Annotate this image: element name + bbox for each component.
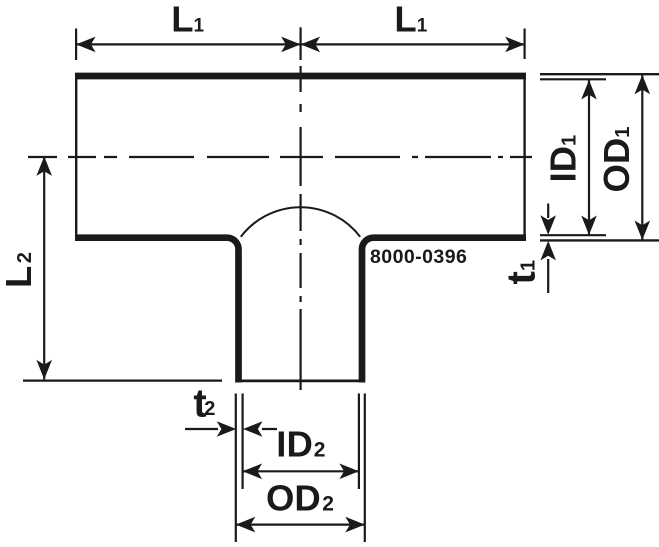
svg-text:t1: t1 bbox=[500, 260, 544, 284]
svg-text:OD1: OD1 bbox=[596, 127, 637, 193]
svg-text:L1: L1 bbox=[171, 0, 204, 40]
svg-text:8000-0396: 8000-0396 bbox=[370, 246, 467, 268]
svg-text:L2: L2 bbox=[0, 252, 39, 288]
svg-text:OD2: OD2 bbox=[266, 478, 334, 519]
svg-text:t2: t2 bbox=[193, 382, 215, 426]
svg-text:ID1: ID1 bbox=[543, 135, 584, 183]
svg-text:ID2: ID2 bbox=[276, 424, 325, 465]
svg-text:L1: L1 bbox=[394, 0, 427, 40]
